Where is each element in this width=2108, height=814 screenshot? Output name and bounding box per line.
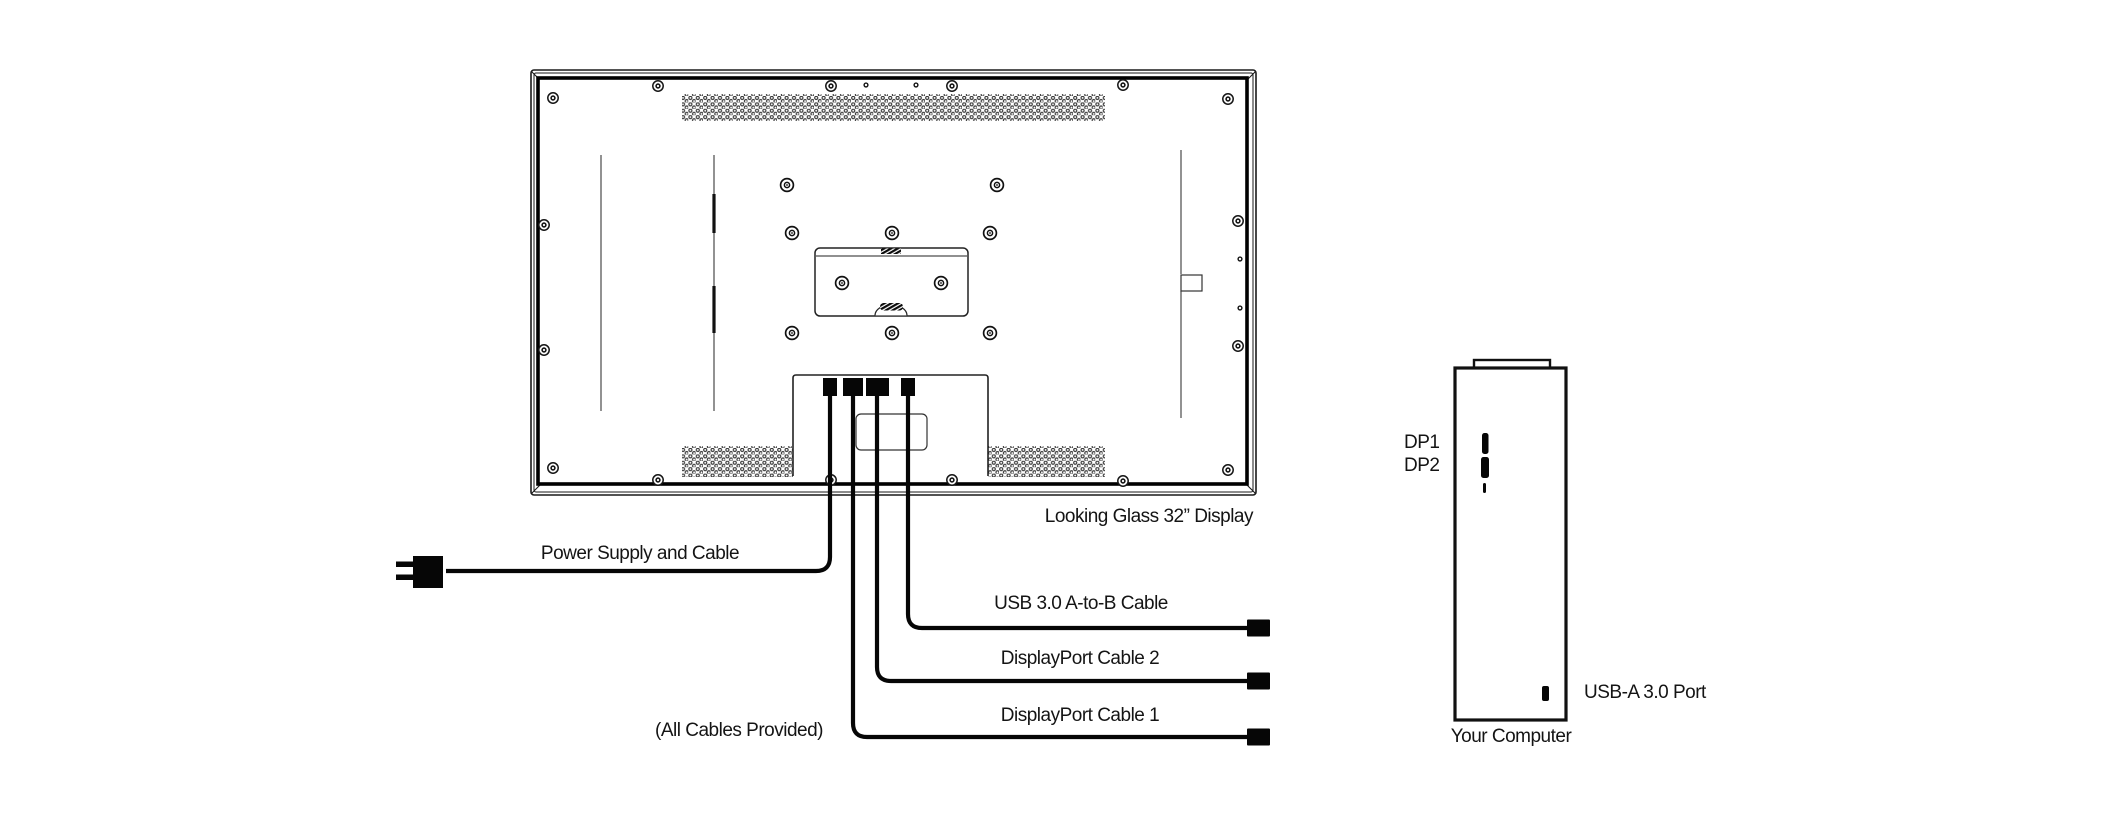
screw-icon [781, 179, 794, 192]
screw-icon [1118, 476, 1128, 486]
screw-icon [991, 179, 1004, 192]
label-dp1-cable: DisplayPort Cable 1 [1001, 705, 1159, 727]
label-computer: Your Computer [1451, 726, 1572, 748]
screw-icon [935, 277, 948, 290]
screw-icon [947, 81, 957, 91]
screw-icon [539, 345, 549, 355]
screw-icon [886, 227, 899, 240]
screw-icon [1223, 94, 1233, 104]
bottom-vent-left [682, 446, 793, 477]
screw-icon [548, 93, 558, 103]
label-cables-note: (All Cables Provided) [655, 720, 823, 742]
power-plug-icon [396, 556, 443, 588]
label-power-cable: Power Supply and Cable [541, 543, 739, 565]
screw-icon [1233, 216, 1243, 226]
screw-icon [886, 327, 899, 340]
screw-icon [984, 327, 997, 340]
screw-icon [836, 277, 849, 290]
setup-diagram: Power Supply and Cable USB 3.0 A-to-B Ca… [0, 0, 2108, 814]
vesa-top-latch [881, 249, 901, 255]
screw-icon [947, 475, 957, 485]
screw-icon [653, 475, 663, 485]
screw-icon [1118, 80, 1128, 90]
screw-icon [653, 81, 663, 91]
label-dp2-port: DP2 [1404, 455, 1439, 477]
usb-b-port [901, 378, 915, 396]
tower-dp1-port [1482, 433, 1489, 454]
side-latch [1181, 275, 1202, 291]
screw-icon [1233, 341, 1243, 351]
tower-usb-port [1542, 686, 1549, 701]
monitor-back-illustration [531, 70, 1256, 495]
tower-dp2-port [1481, 457, 1489, 478]
port-panel [793, 375, 988, 476]
regulatory-plate [856, 414, 927, 450]
screw-icon [548, 463, 558, 473]
usb-connector-icon [1247, 620, 1270, 637]
label-usb-port: USB-A 3.0 Port [1584, 682, 1706, 704]
computer-tower-illustration [1455, 360, 1566, 720]
dp2-connector-icon [1247, 673, 1270, 690]
screw-icon [786, 327, 799, 340]
diagram-line-art [0, 0, 2108, 814]
dp2-port [866, 378, 889, 396]
screw-icon [1223, 465, 1233, 475]
label-dp1-port: DP1 [1404, 432, 1439, 454]
vesa-thumbscrew [880, 303, 903, 311]
label-dp2-cable: DisplayPort Cable 2 [1001, 648, 1159, 670]
screw-icon [826, 81, 836, 91]
label-usb-cable: USB 3.0 A-to-B Cable [994, 593, 1168, 615]
power-port [823, 378, 837, 396]
screw-icon [786, 227, 799, 240]
bottom-vent-right [988, 446, 1105, 477]
top-vent [682, 94, 1105, 121]
tower-body [1455, 368, 1566, 720]
dp1-port [843, 378, 863, 396]
screw-icon [539, 220, 549, 230]
dp1-connector-icon [1247, 729, 1270, 746]
screw-icon [984, 227, 997, 240]
tower-port-slot [1483, 483, 1486, 493]
label-display-name: Looking Glass 32” Display [1045, 506, 1253, 528]
